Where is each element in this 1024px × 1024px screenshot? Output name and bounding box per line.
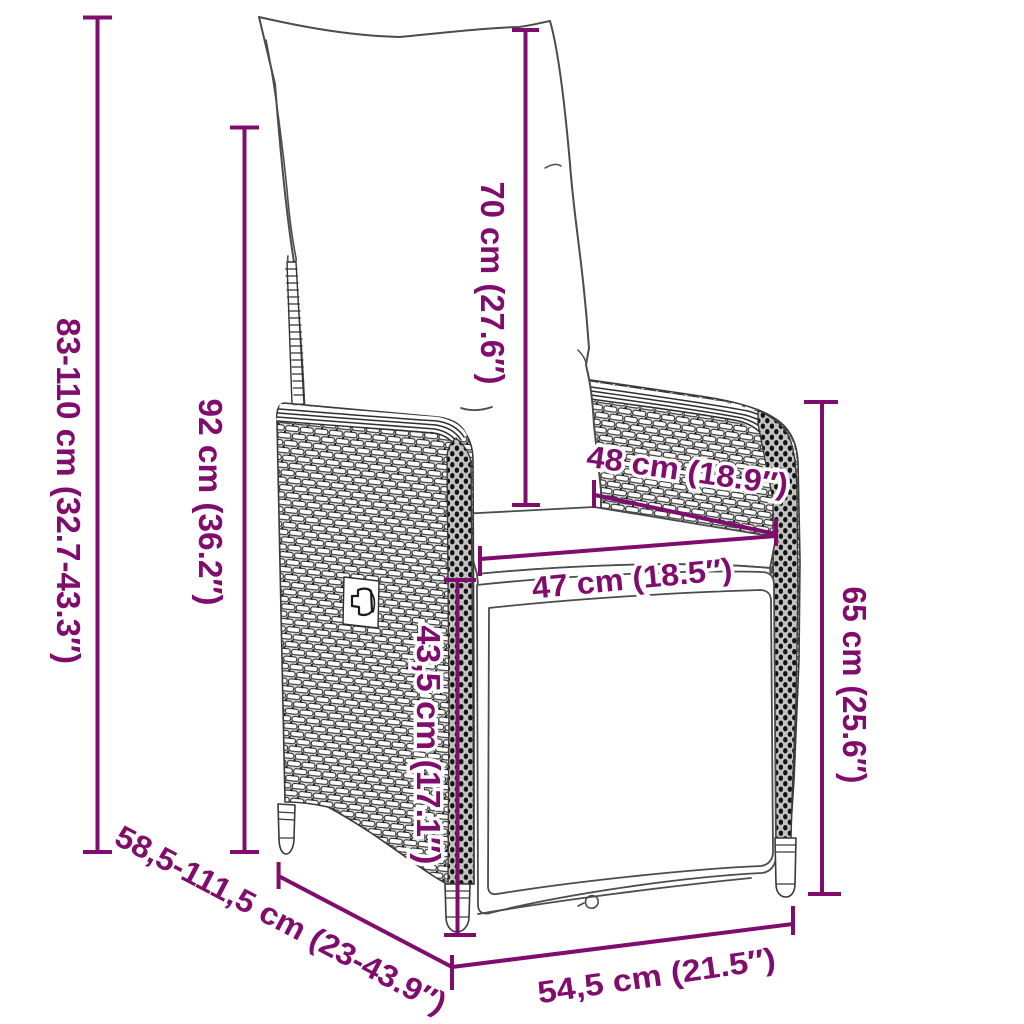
svg-text:70 cm (27.6″): 70 cm (27.6″) [474, 182, 511, 385]
svg-text:65 cm (25.6″): 65 cm (25.6″) [836, 587, 873, 784]
svg-text:92 cm (36.2″): 92 cm (36.2″) [192, 399, 229, 606]
svg-text:83-110 cm (32.7-43.3″): 83-110 cm (32.7-43.3″) [50, 318, 87, 664]
svg-text:43,5 cm (17.1″): 43,5 cm (17.1″) [410, 626, 447, 865]
